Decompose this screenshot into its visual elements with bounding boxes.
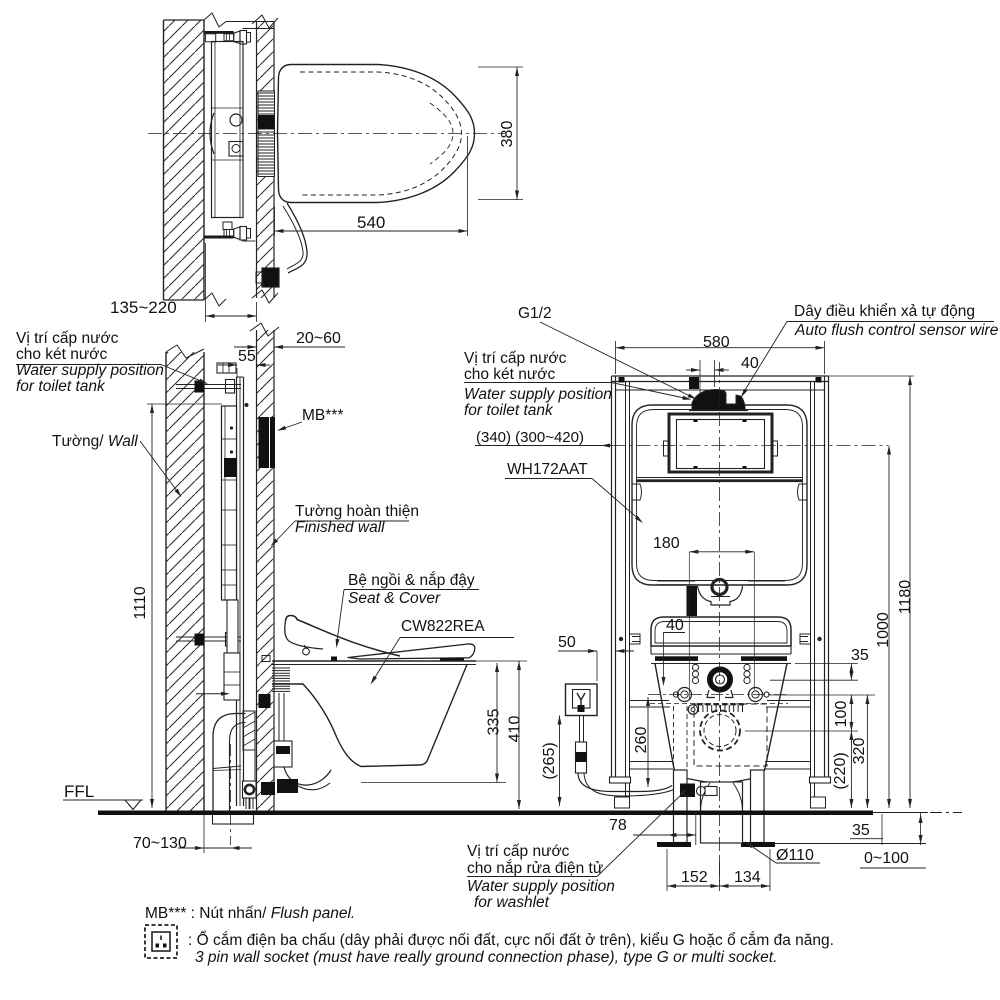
svg-text:3 pin wall socket (must have r: 3 pin wall socket (must have really grou…	[195, 949, 777, 966]
svg-text:FFL: FFL	[64, 782, 94, 801]
svg-text:cho két nước: cho két nước	[464, 366, 555, 383]
svg-text:35: 35	[851, 647, 869, 664]
svg-text:MB*** : Nút nhấn/ Flush panel.: MB*** : Nút nhấn/ Flush panel.	[145, 905, 355, 922]
svg-text:Dây điều khiển xả tự động: Dây điều khiển xả tự động	[794, 303, 975, 320]
svg-text:Water supply position: Water supply position	[464, 386, 612, 403]
svg-text:MB***: MB***	[302, 407, 343, 424]
svg-text:Vị trí cấp nước: Vị trí cấp nước	[467, 843, 570, 860]
svg-text:134: 134	[734, 869, 761, 886]
svg-text:540: 540	[357, 213, 385, 232]
svg-text:335: 335	[486, 709, 503, 736]
svg-text:1000: 1000	[875, 612, 892, 648]
svg-text:70~130: 70~130	[133, 835, 187, 852]
svg-text:35: 35	[852, 822, 870, 839]
svg-text:135~220: 135~220	[110, 298, 177, 317]
svg-text:Ø110: Ø110	[776, 847, 814, 864]
svg-text:55: 55	[238, 348, 256, 365]
svg-text:Water supply position: Water supply position	[16, 362, 164, 379]
svg-text:78: 78	[609, 817, 627, 834]
svg-text:320: 320	[851, 738, 868, 765]
svg-text:1110: 1110	[132, 586, 149, 619]
svg-text:580: 580	[703, 334, 730, 351]
svg-text:for washlet: for washlet	[474, 894, 550, 911]
svg-text:0~100: 0~100	[864, 850, 909, 867]
svg-text:Bệ ngồi & nắp đậy: Bệ ngồi & nắp đậy	[348, 572, 475, 589]
svg-text:40: 40	[666, 617, 684, 634]
svg-text:Seat & Cover: Seat & Cover	[348, 590, 441, 607]
svg-text:for toilet tank: for toilet tank	[16, 378, 106, 395]
svg-text:380: 380	[499, 121, 516, 148]
svg-text:50: 50	[558, 634, 576, 651]
svg-text:for toilet tank: for toilet tank	[464, 402, 554, 419]
svg-text:180: 180	[653, 535, 680, 552]
svg-text:(340) (300~420): (340) (300~420)	[476, 429, 584, 446]
svg-text:100: 100	[833, 701, 850, 728]
svg-text:(265): (265)	[541, 742, 558, 779]
svg-text:Auto flush control sensor wire: Auto flush control sensor wire	[794, 322, 999, 339]
svg-text:WH172AAT: WH172AAT	[507, 461, 588, 478]
svg-text:(220): (220)	[832, 752, 849, 789]
svg-text:40: 40	[741, 355, 759, 372]
svg-text:260: 260	[633, 727, 650, 754]
svg-text:: Ổ cắm điện ba chấu (dây phải: : Ổ cắm điện ba chấu (dây phải được nối …	[188, 931, 834, 949]
svg-text:Water supply position: Water supply position	[467, 878, 615, 895]
svg-text:CW822REA: CW822REA	[401, 618, 485, 635]
svg-text:cho nắp rửa điện tử: cho nắp rửa điện tử	[467, 860, 603, 877]
svg-text:cho két nước: cho két nước	[16, 346, 107, 363]
svg-text:Vị trí cấp nước: Vị trí cấp nước	[16, 330, 119, 347]
svg-text:410: 410	[507, 716, 524, 743]
svg-text:152: 152	[681, 869, 708, 886]
svg-text:Vị trí cấp nước: Vị trí cấp nước	[464, 350, 567, 367]
svg-text:Tường/ Wall: Tường/ Wall	[52, 433, 138, 450]
svg-text:20~60: 20~60	[296, 330, 341, 347]
svg-text:G1/2: G1/2	[518, 305, 552, 322]
svg-text:Tường hoàn thiện: Tường hoàn thiện	[295, 503, 419, 520]
svg-text:Finished wall: Finished wall	[295, 519, 385, 536]
svg-text:1180: 1180	[897, 580, 914, 615]
